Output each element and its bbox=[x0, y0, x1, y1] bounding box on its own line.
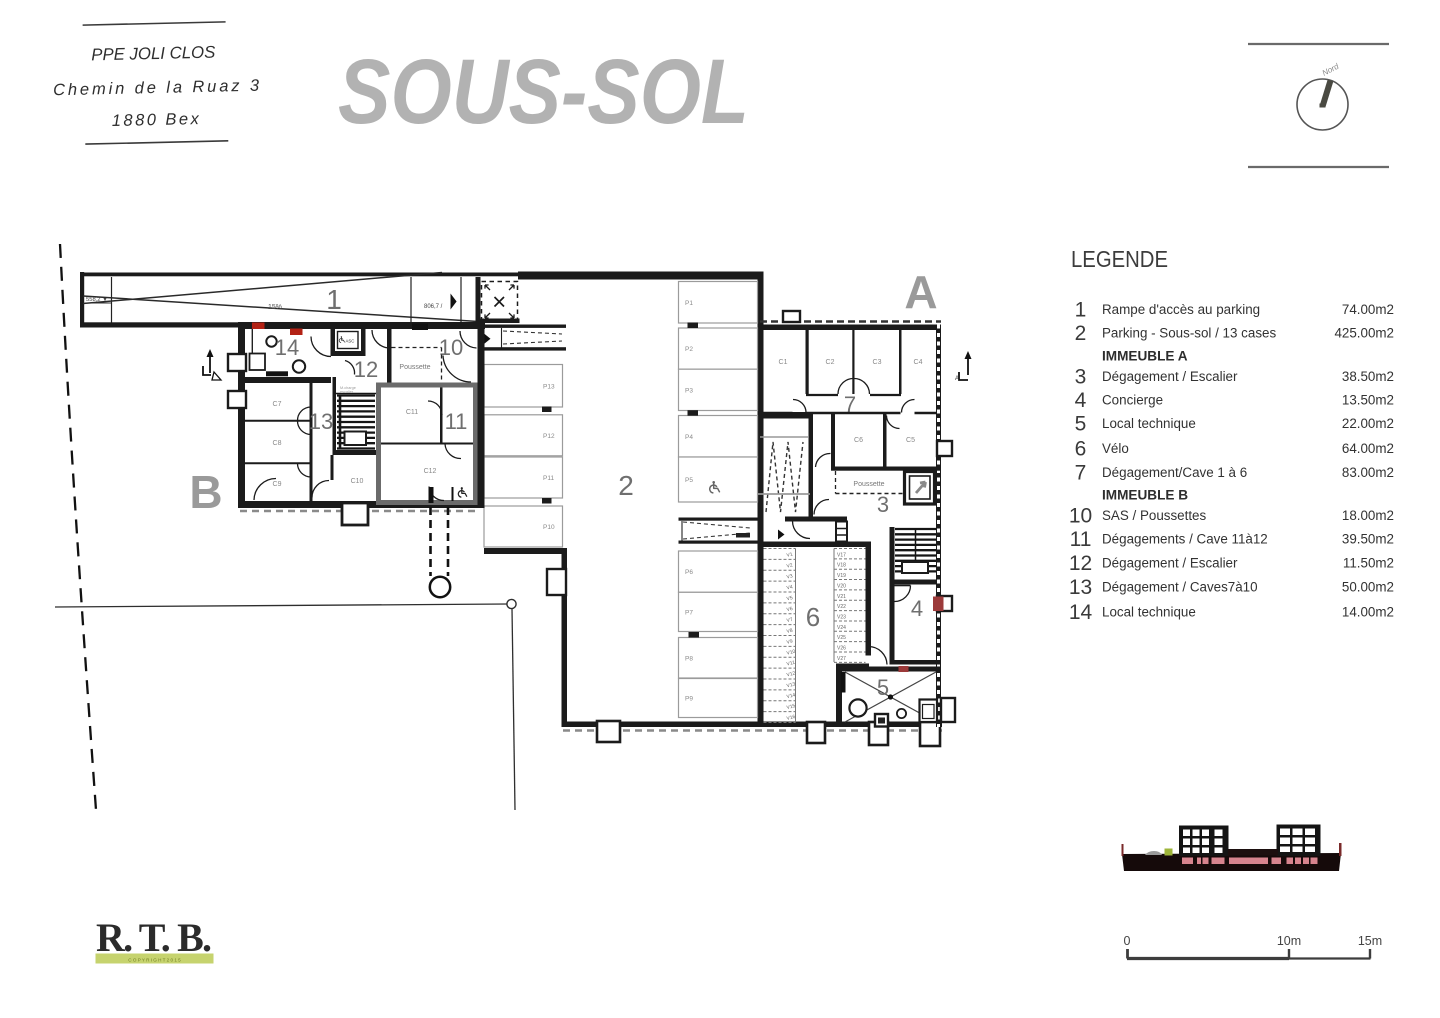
svg-text:C4: C4 bbox=[914, 359, 923, 366]
svg-text:C2: C2 bbox=[826, 359, 835, 366]
svg-text:18.00m2: 18.00m2 bbox=[1342, 508, 1394, 523]
svg-text:3: 3 bbox=[877, 492, 889, 517]
svg-text:12: 12 bbox=[354, 357, 378, 382]
svg-text:425.00m2: 425.00m2 bbox=[1334, 326, 1394, 341]
svg-text:Concierge: Concierge bbox=[1102, 393, 1163, 408]
svg-text:C12: C12 bbox=[424, 468, 437, 475]
svg-text:5: 5 bbox=[1075, 413, 1087, 436]
svg-text:13: 13 bbox=[1069, 576, 1092, 599]
svg-text:C6: C6 bbox=[854, 437, 863, 444]
svg-text:V24: V24 bbox=[837, 625, 846, 631]
svg-text:A: A bbox=[955, 376, 959, 382]
svg-text:10m: 10m bbox=[1277, 934, 1301, 948]
svg-text:P7: P7 bbox=[685, 609, 693, 616]
svg-text:Dégagement / Escalier: Dégagement / Escalier bbox=[1102, 556, 1238, 571]
svg-text:C11: C11 bbox=[406, 409, 418, 416]
svg-text:4: 4 bbox=[1075, 389, 1087, 412]
svg-text:V17: V17 bbox=[837, 552, 846, 558]
svg-text:6: 6 bbox=[1075, 438, 1087, 461]
svg-text:1: 1 bbox=[1075, 299, 1087, 322]
svg-text:P2: P2 bbox=[685, 346, 693, 353]
svg-text:V23: V23 bbox=[837, 614, 846, 620]
svg-text:12: 12 bbox=[1069, 552, 1092, 575]
svg-text:P4: P4 bbox=[685, 434, 693, 441]
svg-text:P13: P13 bbox=[543, 383, 555, 390]
svg-text:22.00m2: 22.00m2 bbox=[1342, 416, 1394, 431]
svg-text:1: 1 bbox=[326, 284, 342, 315]
svg-text:Parking - Sous-sol / 13 cases: Parking - Sous-sol / 13 cases bbox=[1102, 326, 1276, 341]
svg-text:IMMEUBLE B: IMMEUBLE B bbox=[1102, 488, 1188, 503]
svg-text:1880 Bex: 1880 Bex bbox=[112, 110, 200, 130]
svg-text:P12: P12 bbox=[543, 433, 555, 440]
svg-text:PPE JOLI CLOS: PPE JOLI CLOS bbox=[91, 43, 216, 65]
svg-text:74.00m2: 74.00m2 bbox=[1342, 302, 1394, 317]
svg-text:C9: C9 bbox=[273, 481, 282, 488]
svg-text:P9: P9 bbox=[685, 696, 693, 703]
svg-text:C3: C3 bbox=[873, 359, 882, 366]
svg-text:64.00m2: 64.00m2 bbox=[1342, 441, 1394, 456]
svg-text:39.50m2: 39.50m2 bbox=[1342, 532, 1394, 547]
svg-text:6: 6 bbox=[806, 602, 820, 632]
svg-text:V27: V27 bbox=[837, 656, 846, 662]
svg-text:LEGENDE: LEGENDE bbox=[1071, 246, 1168, 272]
svg-text:15m: 15m bbox=[1358, 934, 1382, 948]
svg-text:SOUS-SOL: SOUS-SOL bbox=[338, 41, 749, 143]
svg-text:P5: P5 bbox=[685, 477, 693, 484]
svg-text:R. T. B.: R. T. B. bbox=[96, 915, 212, 960]
svg-text:7: 7 bbox=[1075, 462, 1087, 485]
svg-text:50.00m2: 50.00m2 bbox=[1342, 580, 1394, 595]
svg-text:83.00m2: 83.00m2 bbox=[1342, 465, 1394, 480]
svg-text:Dégagement / Caves7à10: Dégagement / Caves7à10 bbox=[1102, 580, 1258, 595]
svg-text:A: A bbox=[904, 266, 937, 318]
svg-text:V18: V18 bbox=[837, 563, 846, 569]
svg-text:10: 10 bbox=[1069, 505, 1092, 528]
svg-text:P3: P3 bbox=[685, 387, 693, 394]
svg-text:escalier: escalier bbox=[340, 390, 354, 394]
svg-text:Dégagement / Escalier: Dégagement / Escalier bbox=[1102, 369, 1238, 384]
svg-text:V21: V21 bbox=[837, 594, 846, 600]
svg-text:Poussette: Poussette bbox=[853, 481, 884, 488]
svg-text:38.50m2: 38.50m2 bbox=[1342, 369, 1394, 384]
svg-text:Rampe d'accès au parking: Rampe d'accès au parking bbox=[1102, 302, 1260, 317]
svg-text:11.50m2: 11.50m2 bbox=[1343, 556, 1394, 571]
svg-text:11: 11 bbox=[445, 409, 468, 434]
svg-text:C10: C10 bbox=[351, 478, 364, 485]
svg-text:14: 14 bbox=[1069, 601, 1093, 624]
svg-text:C1: C1 bbox=[779, 359, 788, 366]
svg-text:Dégagements / Cave 11à12: Dégagements / Cave 11à12 bbox=[1102, 532, 1268, 547]
svg-text:P8: P8 bbox=[685, 655, 693, 662]
svg-text:C8: C8 bbox=[273, 440, 282, 447]
svg-text:5: 5 bbox=[877, 675, 889, 700]
svg-text:14: 14 bbox=[275, 335, 299, 360]
svg-text:14.00m2: 14.00m2 bbox=[1342, 605, 1394, 620]
svg-text:P10: P10 bbox=[543, 524, 555, 531]
svg-text:15%: 15% bbox=[268, 304, 282, 311]
svg-text:C7: C7 bbox=[273, 401, 282, 408]
svg-text:Local technique: Local technique bbox=[1102, 605, 1196, 620]
svg-text:B: B bbox=[189, 466, 222, 518]
svg-text:V26: V26 bbox=[837, 646, 846, 652]
svg-text:V19: V19 bbox=[837, 573, 846, 579]
svg-text:V20: V20 bbox=[837, 583, 846, 589]
svg-text:13: 13 bbox=[309, 409, 333, 434]
svg-text:806,7 /: 806,7 / bbox=[424, 304, 443, 310]
svg-text:Local technique: Local technique bbox=[1102, 416, 1196, 431]
svg-text:11: 11 bbox=[1070, 528, 1092, 551]
svg-text:C5: C5 bbox=[906, 437, 915, 444]
svg-text:4: 4 bbox=[911, 596, 923, 621]
svg-text:P6: P6 bbox=[685, 569, 693, 576]
svg-text:3: 3 bbox=[1075, 366, 1087, 389]
svg-text:SAS / Poussettes: SAS / Poussettes bbox=[1102, 508, 1207, 523]
svg-text:P11: P11 bbox=[543, 475, 554, 482]
svg-text:0: 0 bbox=[1124, 934, 1131, 948]
svg-text:V25: V25 bbox=[837, 635, 846, 641]
svg-text:2: 2 bbox=[618, 470, 634, 501]
svg-text:13.50m2: 13.50m2 bbox=[1342, 393, 1394, 408]
svg-text:2: 2 bbox=[1075, 322, 1087, 345]
svg-text:V22: V22 bbox=[837, 604, 846, 610]
svg-text:ASC: ASC bbox=[346, 339, 355, 344]
svg-text:C O P Y R I G H T 2 0 1 5: C O P Y R I G H T 2 0 1 5 bbox=[128, 958, 181, 963]
svg-text:Vélo: Vélo bbox=[1102, 441, 1129, 456]
svg-text:Poussette: Poussette bbox=[399, 364, 430, 371]
svg-text:Dégagement/Cave 1 à 6: Dégagement/Cave 1 à 6 bbox=[1102, 465, 1247, 480]
svg-text:P1: P1 bbox=[685, 300, 693, 307]
svg-text:IMMEUBLE A: IMMEUBLE A bbox=[1102, 349, 1188, 364]
